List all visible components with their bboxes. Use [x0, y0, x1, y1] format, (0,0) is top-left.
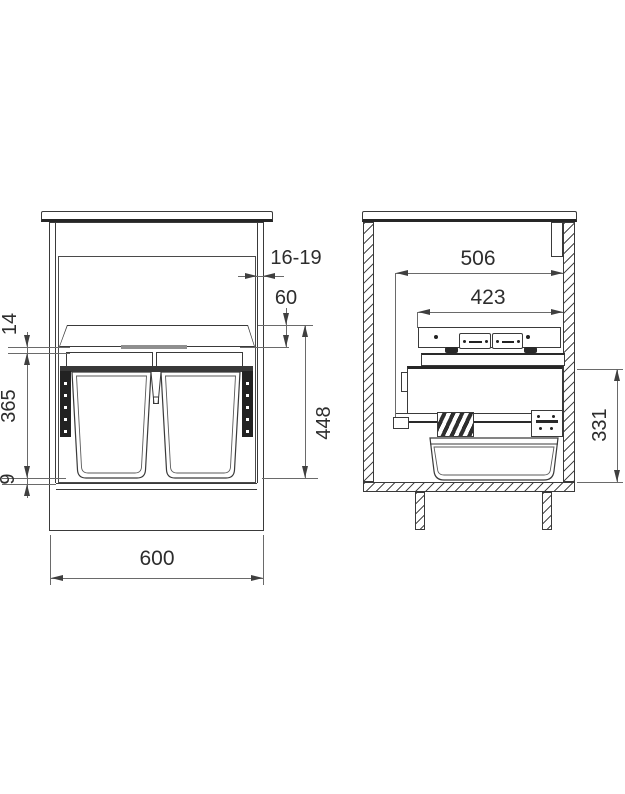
rail-front-tab — [393, 417, 409, 429]
module-slot — [469, 341, 482, 343]
module-dot — [517, 340, 520, 343]
side-view: 506 423 331 — [0, 0, 625, 794]
waste-bin-side — [428, 436, 560, 482]
arrow-423-left — [418, 309, 430, 315]
arrow-331-bottom — [614, 470, 620, 482]
bracket-dot — [552, 415, 555, 418]
plate-screw-left — [434, 335, 438, 339]
technical-drawing-waste-sorter: 16-19 60 14 365 9 448 600 — [0, 0, 625, 794]
side-top-rail-block — [551, 222, 563, 257]
dimline-423 — [417, 312, 563, 313]
side-leg-front — [542, 492, 552, 530]
module-dot — [485, 340, 488, 343]
frame-top-band-side — [421, 353, 565, 366]
plate-module-right — [492, 333, 523, 349]
module-slot — [502, 341, 514, 343]
dim-label-rail-length: 423 — [458, 287, 518, 309]
bracket-slot — [536, 420, 558, 423]
side-bottom-panel-section — [363, 482, 575, 492]
dim-label-required-side-height: 331 — [589, 400, 611, 450]
arrow-506-left — [396, 270, 408, 276]
bracket-dot — [550, 427, 553, 430]
side-front-wall-section — [563, 222, 575, 482]
side-leg-back — [415, 492, 425, 530]
side-back-wall-section — [363, 222, 374, 482]
rail-bracket-front — [531, 410, 563, 437]
arrow-423-right — [551, 309, 563, 315]
dimline-506 — [395, 273, 563, 274]
ext-506-front — [395, 273, 396, 417]
dimline-331 — [617, 369, 618, 482]
ext-331-bottom — [577, 482, 623, 483]
arrow-506-right — [551, 270, 563, 276]
rail-bracket-back — [437, 412, 474, 437]
plate-screw-right — [526, 335, 530, 339]
drawer-front-notch — [401, 372, 408, 392]
bracket-dot — [537, 415, 540, 418]
dim-label-pullout-depth: 506 — [448, 248, 508, 270]
bracket-dot — [539, 427, 542, 430]
module-dot — [496, 340, 499, 343]
side-countertop — [362, 211, 577, 222]
plate-module-left — [459, 333, 491, 349]
module-dot — [463, 340, 466, 343]
arrow-331-top — [614, 369, 620, 381]
